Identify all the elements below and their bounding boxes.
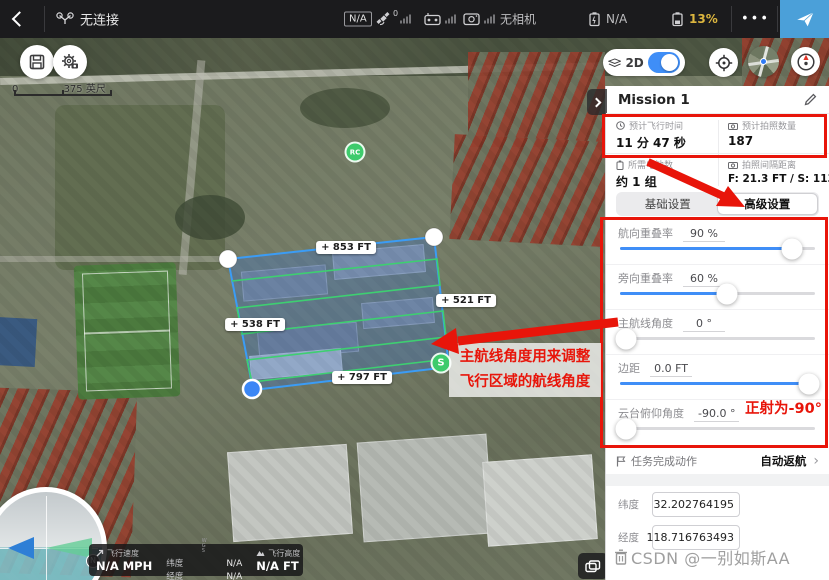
aircraft-icon — [56, 12, 74, 26]
rc-battery-icon — [588, 12, 601, 27]
map-mode-toggle-pill: 2D — [603, 49, 685, 76]
crosshair-icon — [715, 54, 733, 72]
gps-signal-bars — [400, 15, 411, 24]
polygon-handle[interactable] — [425, 228, 443, 246]
map-layers-button[interactable] — [578, 553, 608, 579]
camera-link-icon — [463, 13, 480, 26]
interval-camera-icon — [728, 161, 738, 169]
flag-icon — [616, 456, 626, 467]
polygon-handle-selected[interactable] — [243, 380, 261, 398]
stat-batteries: 所需电池数 约 1 组 — [606, 153, 718, 192]
camera-signal-bars — [484, 15, 495, 24]
more-menu-button[interactable]: ••• — [741, 12, 770, 27]
rc-location-marker: RC — [345, 142, 366, 163]
mission-title: Mission 1 — [618, 92, 690, 108]
edge-length-label-right: + 521 FT — [436, 294, 496, 307]
altitude-block: 飞行高度 N/A FT — [249, 544, 307, 576]
gps-satellite-icon — [376, 12, 391, 26]
polygon-handle[interactable] — [219, 250, 237, 268]
compass-reset-button[interactable] — [791, 47, 820, 76]
battery-icon — [616, 160, 624, 170]
clock-icon — [616, 121, 625, 130]
mission-header: Mission 1 — [606, 86, 829, 114]
map-mode-label: 2D — [625, 56, 643, 70]
compass-icon — [796, 52, 816, 72]
speed-value: N/A MPH — [96, 559, 152, 573]
latitude-row: 纬度 32.202764195 — [618, 492, 740, 517]
mission-stats: 预计飞行时间 11 分 47 秒 预计拍照数量 187 — [606, 114, 829, 192]
altitude-value: N/A FT — [256, 559, 300, 573]
gps-count: 0 — [393, 9, 398, 18]
gear-icon — [61, 53, 79, 71]
edge-length-label-bottom: + 797 FT — [332, 371, 392, 384]
course-angle-field[interactable]: 0 ° — [683, 317, 725, 332]
edge-length-label-left: + 538 FT — [225, 318, 285, 331]
layers-icon — [585, 560, 601, 573]
rc-battery-value: N/A — [606, 12, 627, 26]
map-layers-2d-icon — [608, 58, 621, 68]
annotation-note: 主航线角度用来调整 飞行区域的航线角度 — [449, 343, 601, 397]
camera-status: 无相机 — [500, 11, 536, 28]
gimbal-pitch-slider[interactable] — [620, 427, 815, 430]
finish-action-value: 自动返航 — [760, 453, 806, 469]
setting-row-course-angle: 主航线角度 0 ° — [606, 310, 829, 355]
remote-controller-icon — [424, 13, 441, 26]
aircraft-heading-icon — [8, 537, 34, 559]
minimap-location-dot — [760, 58, 767, 65]
heading-wedge — [46, 538, 92, 558]
locate-me-button[interactable] — [709, 48, 738, 77]
tab-advanced-settings[interactable]: 高级设置 — [718, 194, 818, 214]
setting-row-course-overlap: 航向重叠率 90 % — [606, 220, 829, 265]
map-scale: 0 375 英尺 — [12, 80, 106, 95]
finish-action-row[interactable]: 任务完成动作 自动返航 › — [606, 448, 829, 474]
lat-value: N/A — [226, 559, 242, 569]
stat-photo-interval: 拍照间隔距离 F: 21.3 FT / S: 113.6 FT — [718, 153, 829, 192]
gimbal-pitch-field[interactable]: -90.0 ° — [694, 407, 739, 422]
panel-collapse-button[interactable] — [587, 89, 607, 115]
speed-block: 飞行速度 N/A MPH — [89, 544, 159, 576]
margin-field[interactable]: 0.0 FT — [650, 362, 692, 377]
rc-signal-bars — [445, 15, 456, 24]
app-root: + 853 FT + 521 FT + 538 FT + 797 FT RC S… — [0, 0, 829, 580]
connection-status: 无连接 — [80, 10, 119, 29]
settings-tabs: 基础设置 高级设置 — [616, 192, 819, 216]
aircraft-battery-icon — [671, 12, 684, 27]
section-divider — [606, 474, 829, 486]
latitude-input[interactable]: 32.202764195 — [652, 492, 740, 517]
longitude-input[interactable]: 118.716763493 — [652, 525, 740, 550]
side-overlap-slider[interactable] — [620, 292, 815, 295]
stat-photo-count: 预计拍照数量 187 — [718, 114, 829, 153]
takeoff-plane-icon — [794, 9, 816, 29]
takeoff-button[interactable] — [780, 0, 829, 38]
setting-row-margin: 边距 0.0 FT — [606, 355, 829, 400]
save-mission-button[interactable] — [20, 45, 54, 79]
course-overlap-field[interactable]: 90 % — [683, 227, 725, 242]
gps-block: WGS 纬度N/A 经度N/A — [159, 544, 249, 576]
stat-flight-time: 预计飞行时间 11 分 47 秒 — [606, 114, 718, 153]
camera-icon — [728, 122, 738, 130]
chevron-right-icon: › — [813, 453, 819, 469]
aircraft-battery-value: 13% — [689, 12, 718, 26]
minimap-thumbnail[interactable] — [748, 46, 779, 77]
camera-settings-button[interactable] — [53, 45, 87, 79]
map-mode-switch[interactable] — [648, 52, 680, 73]
altitude-icon — [256, 549, 265, 557]
back-button[interactable] — [14, 10, 25, 29]
coordinates-section: 纬度 32.202764195 经度 118.716763493 — [606, 486, 829, 580]
flight-mode-badge: N/A — [344, 12, 372, 27]
telemetry-bar: 飞行速度 N/A MPH WGS 纬度N/A 经度N/A — [89, 544, 303, 576]
tab-basic-settings[interactable]: 基础设置 — [618, 194, 718, 214]
save-icon — [29, 54, 45, 70]
mission-panel: Mission 1 预计飞行时间 11 分 47 秒 — [605, 86, 829, 580]
annotation-ortho-note: 正射为-90° — [745, 397, 822, 418]
course-overlap-slider[interactable] — [620, 247, 815, 250]
speed-arrow-icon — [96, 549, 104, 557]
lng-value: N/A — [226, 572, 242, 580]
side-overlap-field[interactable]: 60 % — [683, 272, 725, 287]
margin-slider[interactable] — [620, 382, 815, 385]
edge-length-label-top: + 853 FT — [316, 241, 376, 254]
longitude-row: 经度 118.716763493 — [618, 525, 740, 550]
course-angle-slider[interactable] — [620, 337, 815, 340]
setting-row-side-overlap: 旁向重叠率 60 % — [606, 265, 829, 310]
edit-pencil-icon[interactable] — [804, 93, 817, 106]
chevron-right-icon — [591, 97, 601, 107]
top-status-bar: 无连接 N/A 0 无相机 N/A — [0, 0, 829, 38]
